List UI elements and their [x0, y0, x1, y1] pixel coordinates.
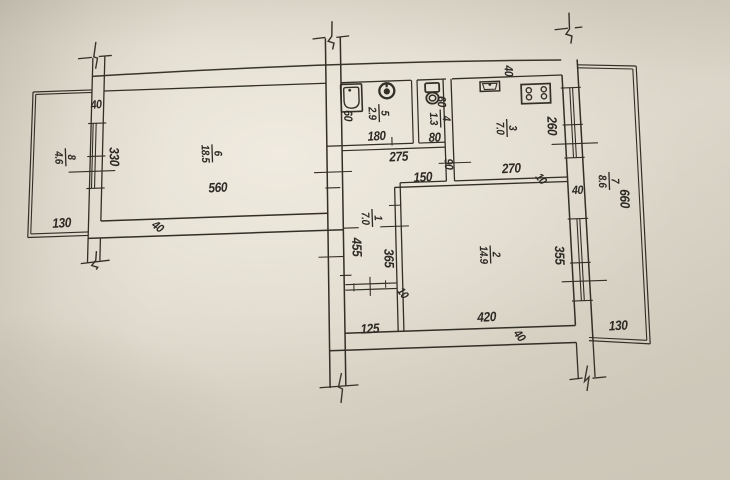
svg-text:80: 80 — [428, 130, 441, 145]
svg-text:60: 60 — [434, 96, 447, 108]
svg-text:365: 365 — [381, 249, 398, 270]
svg-text:3: 3 — [506, 125, 519, 131]
svg-text:420: 420 — [476, 308, 497, 325]
svg-text:330: 330 — [106, 147, 123, 167]
svg-text:60: 60 — [341, 110, 354, 122]
svg-text:7: 7 — [608, 178, 621, 185]
svg-text:355: 355 — [552, 246, 569, 267]
svg-text:10: 10 — [532, 171, 549, 187]
svg-text:1.3: 1.3 — [427, 112, 440, 126]
svg-text:8: 8 — [65, 154, 78, 160]
svg-text:7.0: 7.0 — [358, 212, 371, 226]
svg-text:660: 660 — [617, 189, 634, 209]
svg-text:40: 40 — [89, 98, 103, 112]
svg-text:5: 5 — [378, 110, 391, 116]
svg-text:130: 130 — [52, 214, 72, 231]
svg-text:130: 130 — [608, 317, 628, 334]
svg-text:2.9: 2.9 — [365, 106, 378, 120]
svg-text:14.9: 14.9 — [477, 246, 490, 265]
svg-text:7.0: 7.0 — [493, 122, 506, 136]
svg-text:455: 455 — [349, 236, 366, 257]
svg-text:90: 90 — [441, 158, 454, 170]
svg-text:560: 560 — [208, 179, 228, 196]
svg-text:270: 270 — [500, 160, 521, 177]
svg-text:8.6: 8.6 — [595, 175, 608, 189]
svg-text:4: 4 — [439, 115, 452, 122]
svg-text:275: 275 — [388, 148, 410, 165]
svg-text:6: 6 — [211, 150, 224, 156]
svg-text:125: 125 — [360, 320, 381, 337]
svg-text:4.6: 4.6 — [52, 150, 65, 164]
svg-text:1: 1 — [371, 215, 384, 221]
svg-text:150: 150 — [413, 168, 433, 185]
svg-text:2: 2 — [489, 251, 502, 258]
svg-text:180: 180 — [367, 128, 386, 144]
svg-text:40: 40 — [501, 64, 514, 77]
svg-text:40: 40 — [571, 184, 584, 197]
svg-text:260: 260 — [544, 115, 561, 136]
svg-text:40: 40 — [510, 327, 528, 345]
svg-text:18.5: 18.5 — [198, 145, 211, 164]
svg-text:40: 40 — [148, 218, 166, 236]
